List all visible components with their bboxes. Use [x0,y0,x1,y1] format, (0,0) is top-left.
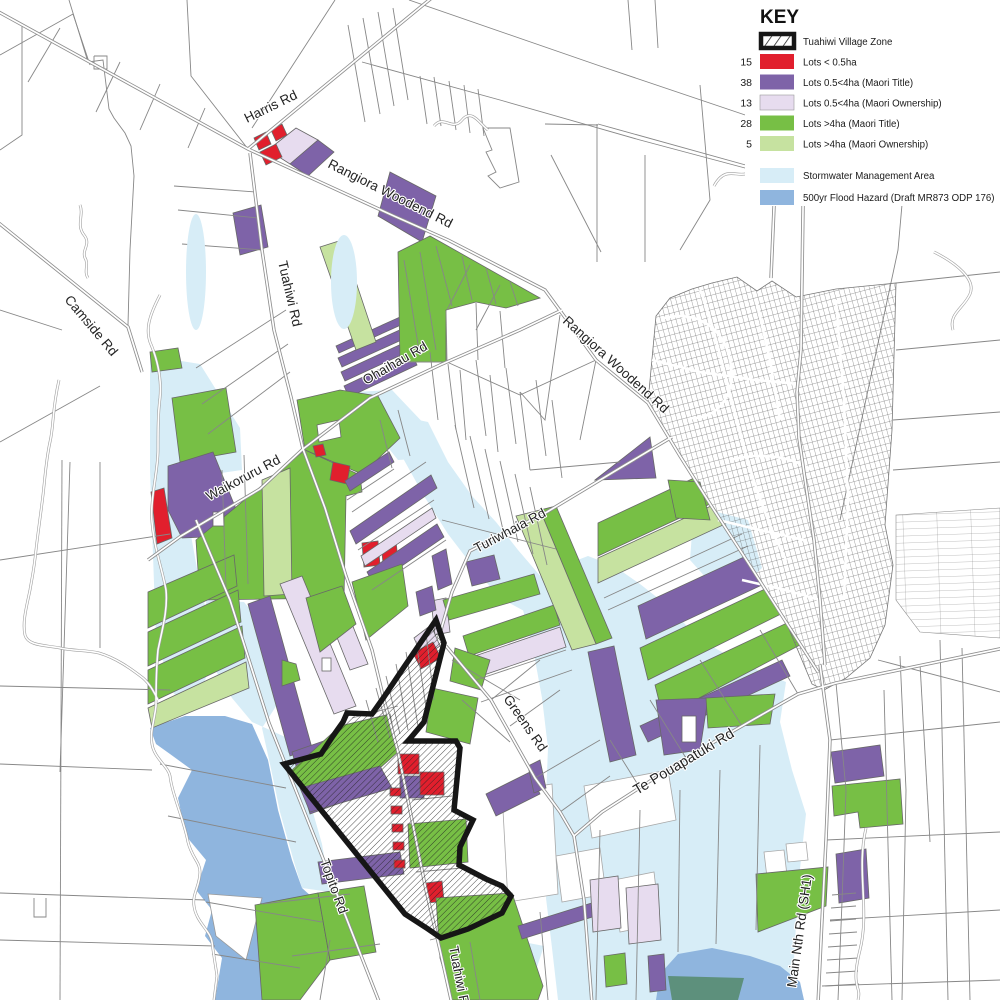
svg-text:Lots < 0.5ha: Lots < 0.5ha [803,58,857,69]
svg-text:Lots 0.5<4ha (Maori Ownership): Lots 0.5<4ha (Maori Ownership) [803,99,942,110]
svg-text:28: 28 [740,118,752,130]
svg-text:Stormwater Management Area: Stormwater Management Area [803,171,935,182]
svg-text:Lots 0.5<4ha (Maori Title): Lots 0.5<4ha (Maori Title) [803,78,913,89]
svg-text:500yr Flood Hazard (Draft MR87: 500yr Flood Hazard (Draft MR873 ODP 176) [803,193,995,204]
svg-text:KEY: KEY [760,7,799,28]
svg-text:5: 5 [746,139,752,151]
svg-text:Tuahiwi Village Zone: Tuahiwi Village Zone [803,37,892,48]
svg-text:Lots >4ha (Maori Ownership): Lots >4ha (Maori Ownership) [803,140,928,151]
svg-text:38: 38 [740,77,752,89]
svg-text:Lots >4ha (Maori Title): Lots >4ha (Maori Title) [803,119,900,130]
svg-text:13: 13 [740,98,752,110]
svg-text:15: 15 [740,57,752,69]
